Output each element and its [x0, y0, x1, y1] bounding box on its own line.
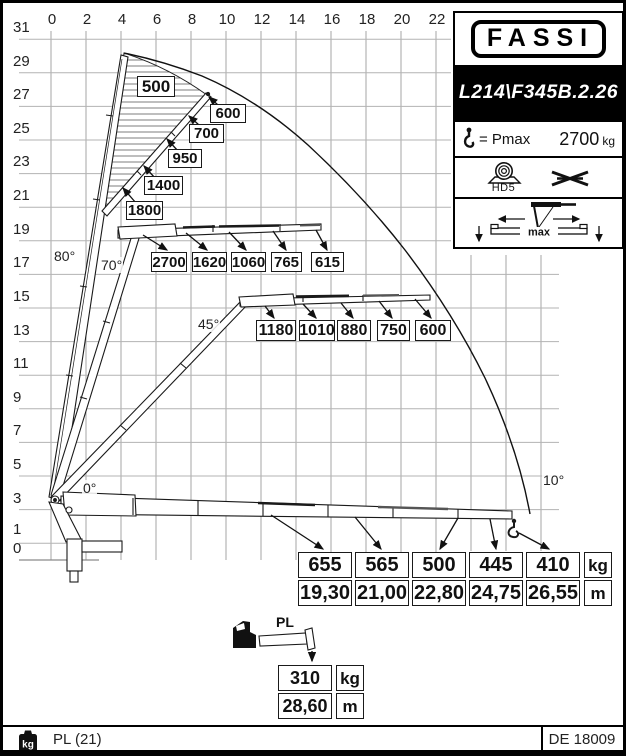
y-axis-label: 21: [13, 187, 45, 204]
boom-0deg: [61, 492, 512, 519]
y-axis-label: 3: [13, 490, 45, 507]
outreach-distance-cell: 24,75: [469, 580, 523, 606]
outreach-load-cell: 500: [412, 552, 466, 578]
outreach-load-cell: 410: [526, 552, 580, 578]
load-box-1800: 1800: [126, 201, 163, 220]
footer-divider: [3, 725, 623, 727]
x-axis-label: 2: [73, 11, 101, 28]
crane-load-diagram-page: 0 2 4 6 8 10 12 14 16 18 20 22 31 29 27 …: [0, 0, 626, 756]
label-arrows-outreach: [271, 515, 549, 549]
footer-doc-ref: DE 18009: [543, 731, 621, 748]
x-axis-label: 10: [213, 11, 241, 28]
pl-label: PL: [276, 614, 294, 630]
y-axis-label: 9: [13, 389, 45, 406]
hook-icon: [509, 519, 519, 537]
pl-load-cell: 310: [278, 665, 332, 691]
pmax-value: 2700: [559, 129, 599, 150]
x-axis-label: 14: [283, 11, 311, 28]
pl-unit-kg: kg: [336, 665, 364, 691]
x-axis-label: 6: [143, 11, 171, 28]
y-axis-label: 17: [13, 254, 45, 271]
load-box-600: 600: [210, 104, 246, 123]
weight-icon-text: kg: [22, 740, 34, 751]
x-axis-label: 8: [178, 11, 206, 28]
model-text: L214\F345B.2.26: [459, 81, 618, 104]
x-axis-label: 16: [318, 11, 346, 28]
capability-icons-row: HD5: [455, 156, 622, 197]
brand-logo: FASSI: [455, 13, 622, 65]
y-axis-label: 5: [13, 456, 45, 473]
no-jib-crossed-icon: [548, 165, 592, 191]
load-box-500: 500: [137, 76, 175, 97]
winch-label: HD5: [492, 183, 516, 194]
y-axis-label: 23: [13, 153, 45, 170]
load-box-70deg: 1620: [192, 252, 227, 272]
info-panel: FASSI L214\F345B.2.26 = Pmax 2700 kg: [453, 11, 624, 249]
hook-icon: [462, 127, 476, 152]
x-axis-label: 12: [248, 11, 276, 28]
y-axis-label: 1: [13, 521, 45, 538]
y-axis-label: 15: [13, 288, 45, 305]
load-box-45deg: 600: [415, 320, 451, 341]
y-axis-label: 19: [13, 221, 45, 238]
load-box-700: 700: [189, 124, 224, 143]
outreach-distance-cell: 21,00: [355, 580, 409, 606]
pl-distance-cell: 28,60: [278, 693, 332, 719]
x-axis-label: 20: [388, 11, 416, 28]
winch-block: HD5: [486, 161, 522, 194]
angle-label-80: 80°: [53, 248, 76, 264]
outreach-distance-cell: 19,30: [298, 580, 352, 606]
outreach-distance-cell: 26,55: [526, 580, 580, 606]
load-box-45deg: 880: [337, 320, 371, 341]
load-box-45deg: 1180: [256, 320, 296, 341]
pl-unit-m: m: [336, 693, 364, 719]
brand-logo-text: FASSI: [471, 20, 606, 58]
y-axis-label: 0: [13, 540, 45, 557]
y-axis-label: 27: [13, 86, 45, 103]
weight-kg-icon: kg: [16, 728, 40, 756]
load-box-1400: 1400: [144, 176, 183, 195]
angle-label-10: 10°: [542, 472, 565, 488]
outreach-load-cell: 565: [355, 552, 409, 578]
y-axis-label: 7: [13, 422, 45, 439]
load-box-70deg: 2700: [151, 252, 187, 272]
y-axis-label: 31: [13, 19, 45, 36]
load-box-70deg: 615: [311, 252, 344, 272]
truck-icon: [233, 621, 256, 648]
x-axis-label: 22: [423, 11, 451, 28]
pmax-unit: kg: [602, 134, 615, 148]
load-box-45deg: 1010: [299, 320, 335, 341]
outreach-load-cell: 445: [469, 552, 523, 578]
load-box-70deg: 1060: [231, 252, 266, 272]
angle-label-0: 0°: [82, 480, 97, 496]
x-axis-label: 18: [353, 11, 381, 28]
load-box-45deg: 750: [377, 320, 410, 341]
y-axis-label: 13: [13, 322, 45, 339]
stabilizer-max-label: max: [527, 227, 550, 239]
angle-label-70: 70°: [100, 257, 123, 273]
load-box-70deg: 765: [271, 252, 302, 272]
x-axis-label: 4: [108, 11, 136, 28]
footer-load-class: PL (21): [53, 731, 102, 748]
load-box-950: 950: [168, 149, 202, 168]
pmax-label: = Pmax: [479, 131, 530, 148]
stabilizer-diagram: max: [463, 199, 615, 247]
outreach-unit-kg: kg: [584, 552, 612, 578]
pmax-row: = Pmax 2700 kg: [455, 120, 622, 156]
model-banner: L214\F345B.2.26: [455, 65, 622, 121]
y-axis-label: 11: [13, 355, 45, 372]
outreach-load-cell: 655: [298, 552, 352, 578]
y-axis-label: 29: [13, 53, 45, 70]
outreach-unit-m: m: [584, 580, 612, 606]
outreach-distance-cell: 22,80: [412, 580, 466, 606]
y-axis-label: 25: [13, 120, 45, 137]
pl-extension-sketch: [233, 621, 315, 661]
stabilizer-row: max: [455, 197, 622, 247]
angle-label-45: 45°: [197, 316, 220, 332]
